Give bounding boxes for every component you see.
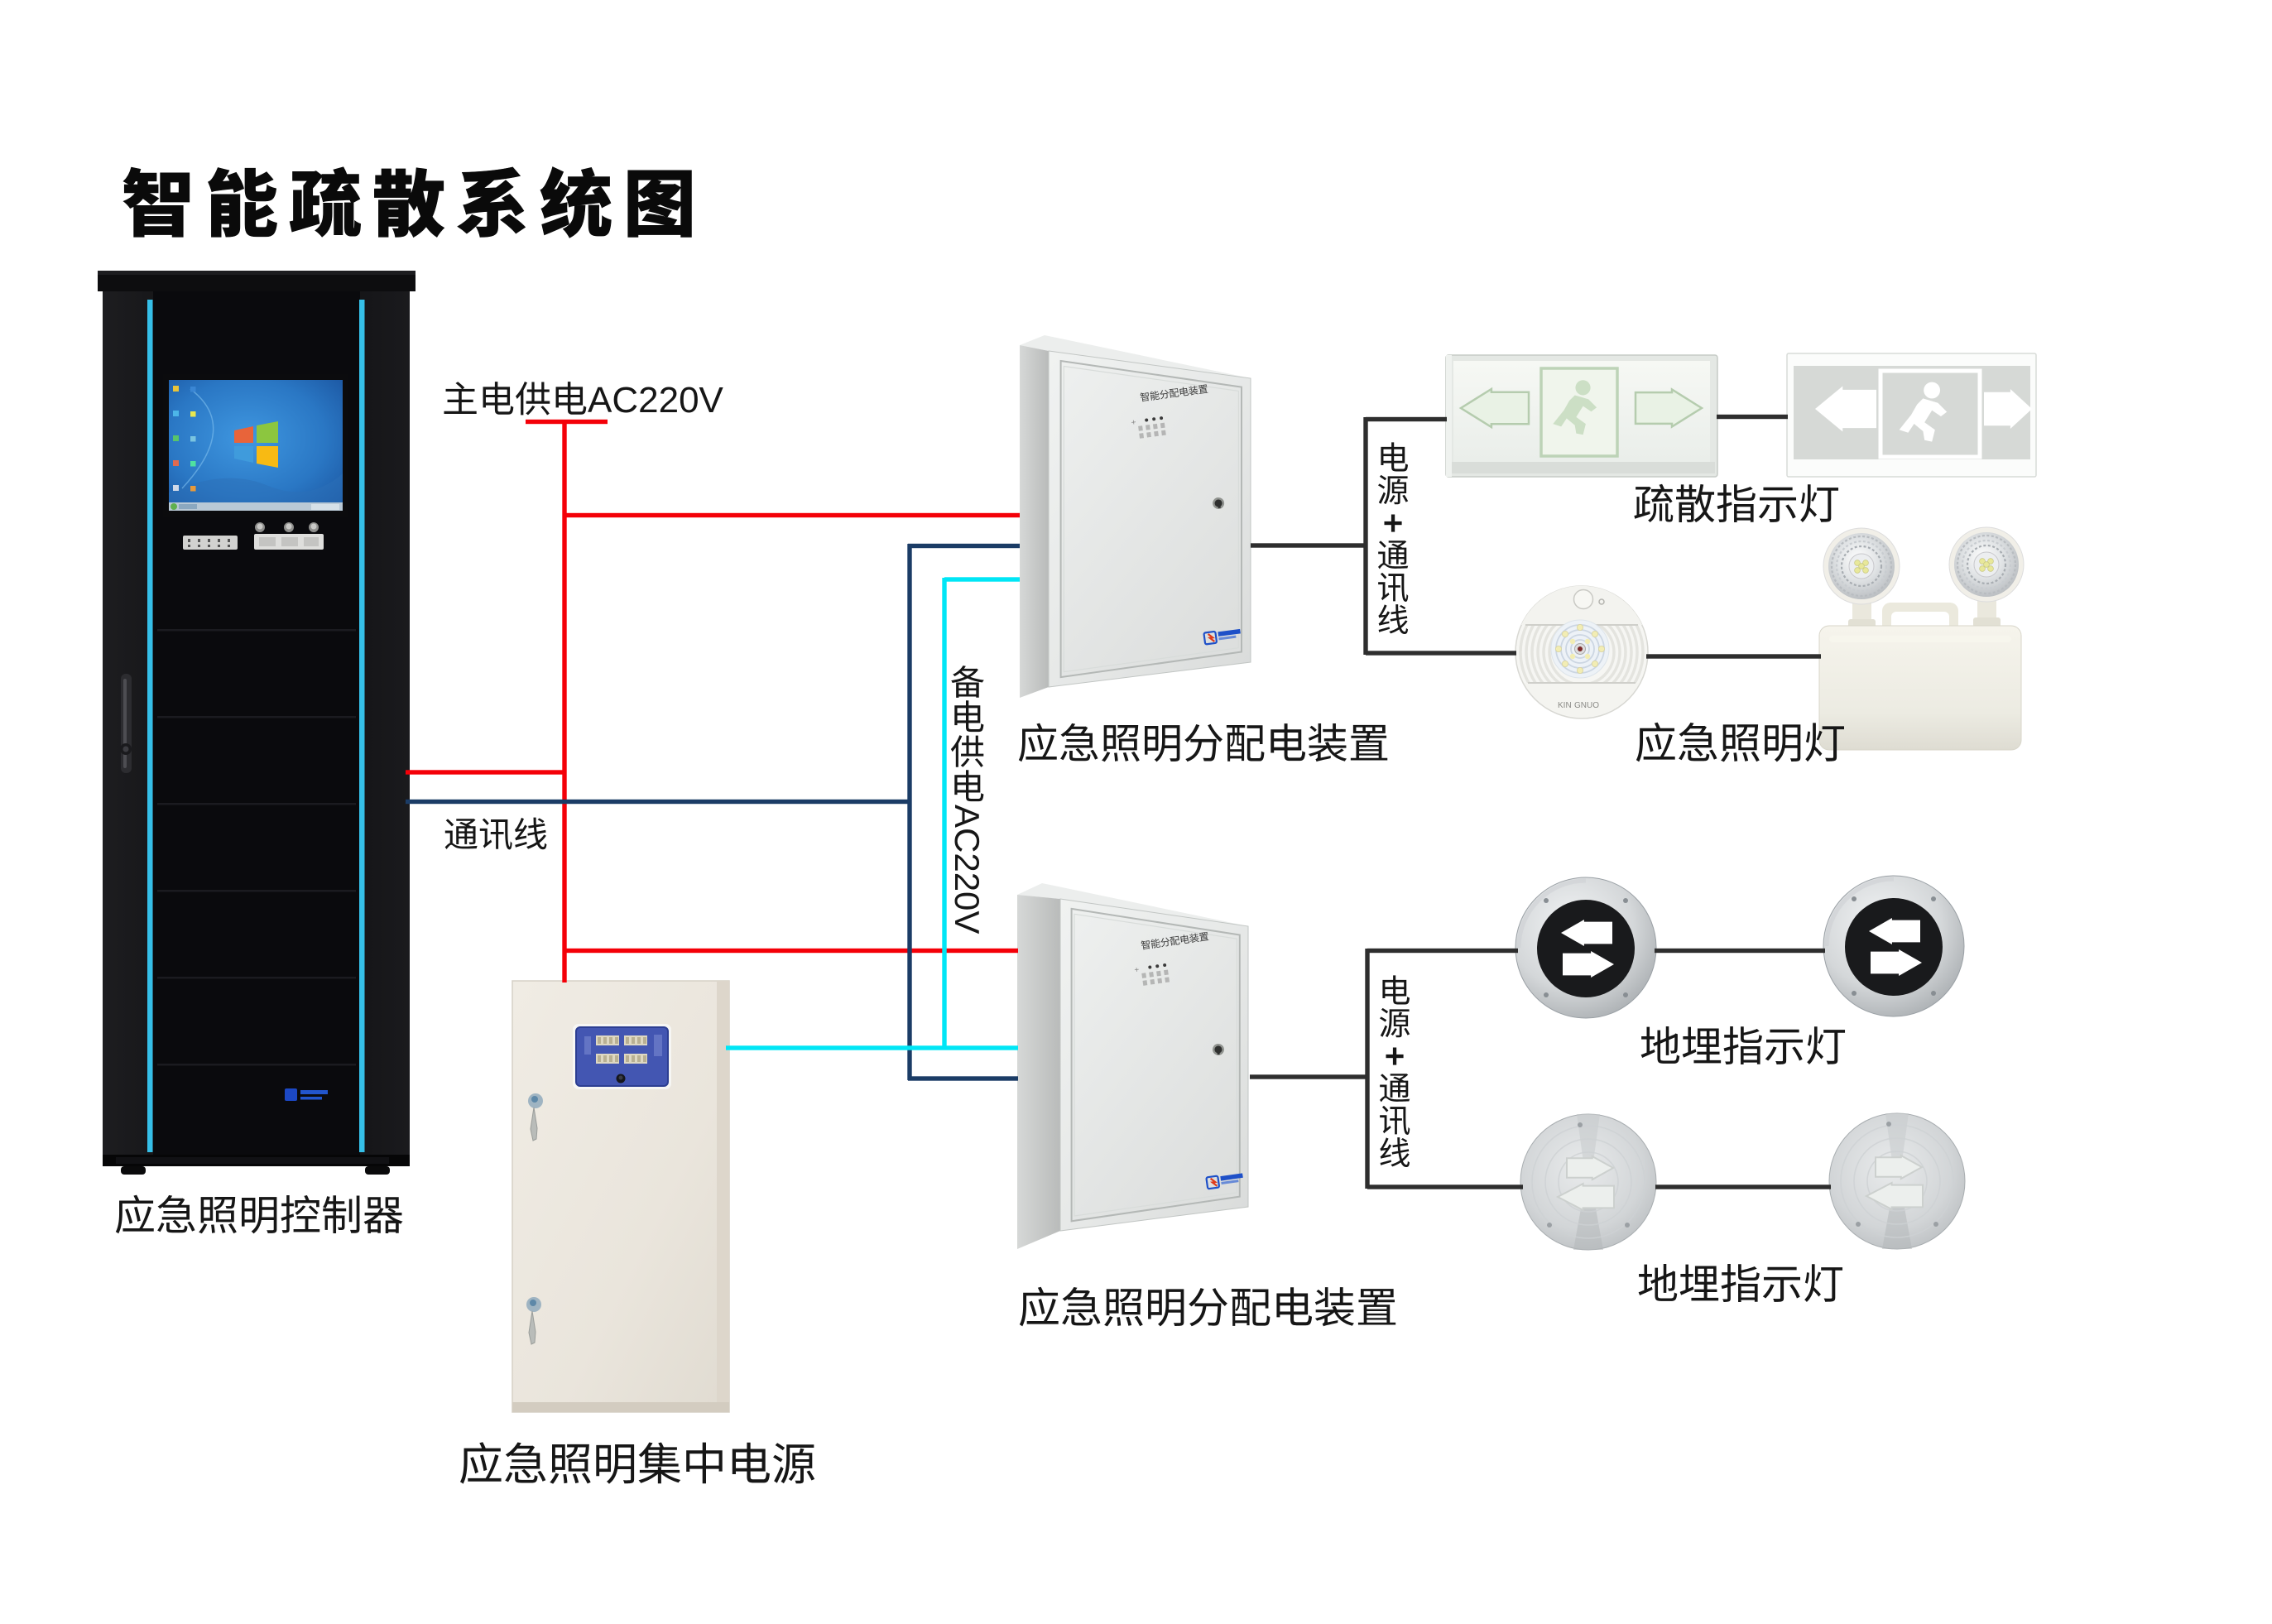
svg-text:AC220V: AC220V xyxy=(588,380,724,420)
svg-text:KIN: KIN xyxy=(1558,701,1572,710)
svg-text:GNUO: GNUO xyxy=(1574,701,1599,710)
svg-text:AC220V: AC220V xyxy=(948,805,987,934)
